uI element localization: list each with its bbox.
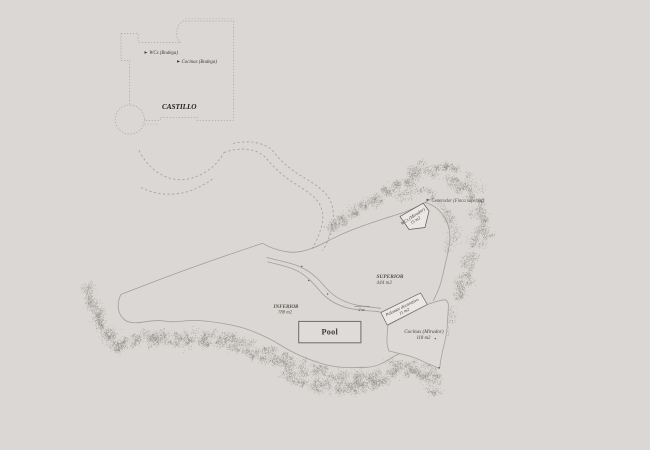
svg-text:2 m: 2 m [358,307,364,312]
svg-text:Generador (Finca superior): Generador (Finca superior) [432,199,485,204]
svg-text:Cocinas (Mirador): Cocinas (Mirador) [404,328,444,335]
svg-text:CASTILLO: CASTILLO [162,102,197,111]
svg-text:INFERIOR: INFERIOR [273,304,300,310]
svg-text:Cocinas (Bodega): Cocinas (Bodega) [182,60,218,65]
svg-text:WCs (Bodega): WCs (Bodega) [149,51,178,56]
svg-text:788 m2: 788 m2 [278,310,293,315]
svg-text:Pool: Pool [321,328,338,337]
svg-text:118 m2: 118 m2 [416,336,431,341]
svg-text:444 m2: 444 m2 [377,279,393,286]
